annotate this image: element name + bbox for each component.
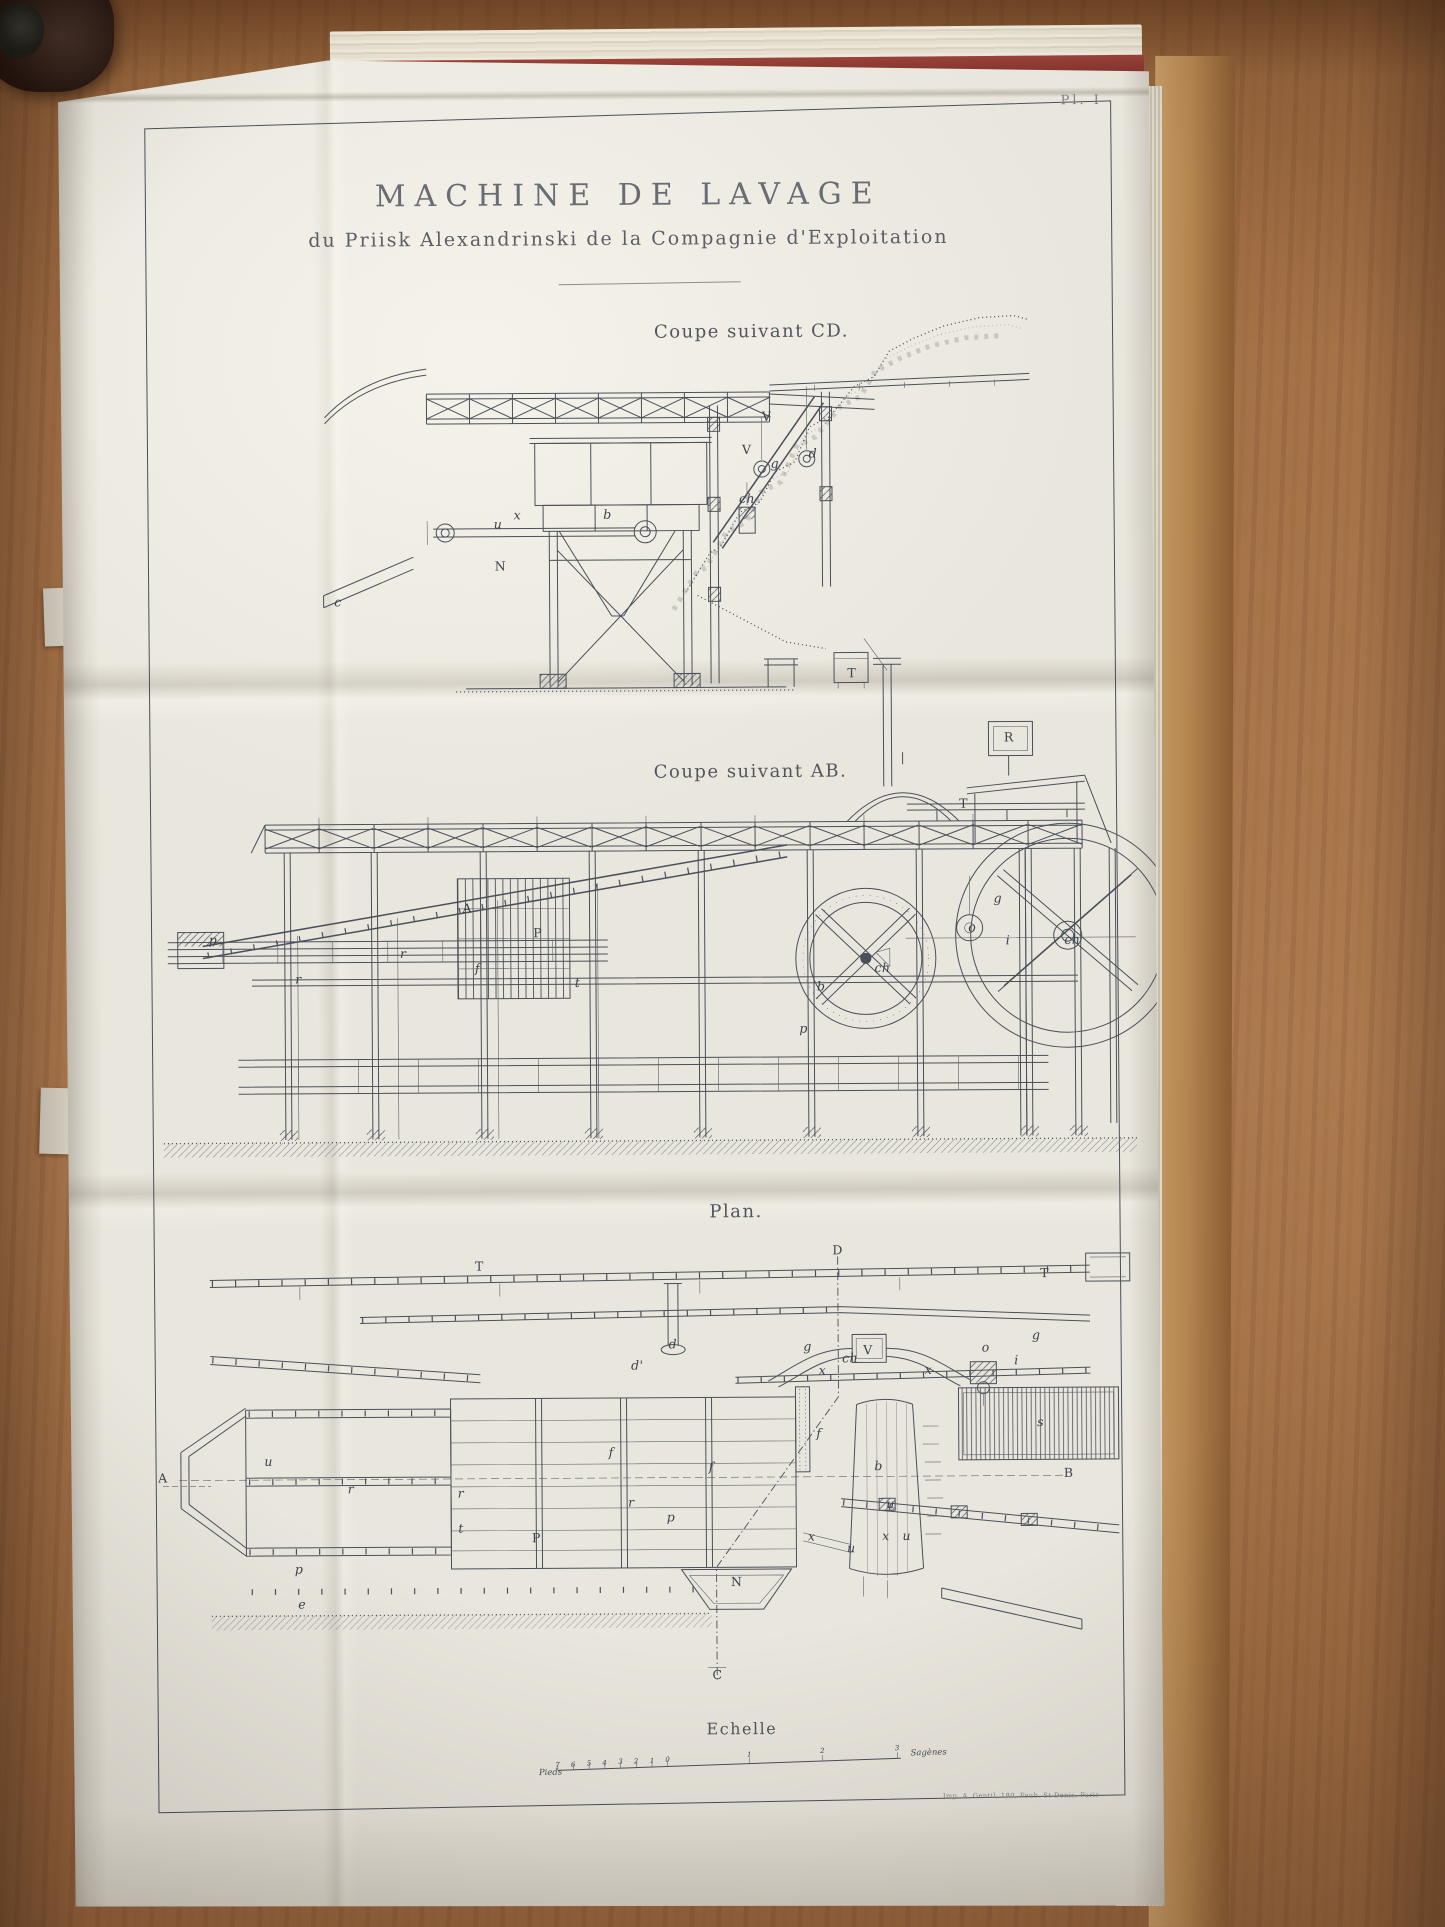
printer-imprint: Imp. A. Gentil, 180, Faub. St Denis, Par…: [943, 1791, 1099, 1800]
part-label-t: t: [458, 1523, 464, 1536]
part-label-o: o: [968, 922, 976, 935]
part-label-r: r: [295, 974, 302, 987]
folded-plate-sheet: Pl. I MACHINE DE LAVAGE du Priisk Alexan…: [52, 53, 1165, 1924]
part-label-s: s: [1037, 1416, 1044, 1429]
part-label-x: x: [925, 1364, 933, 1377]
part-label-N: N: [495, 560, 507, 573]
part-label-g: g: [803, 1340, 812, 1353]
labels-coupe-ab: RTgoichchbpAPrrftp: [146, 635, 1139, 1191]
part-label-g: g: [994, 892, 1003, 905]
part-label-C: C: [712, 1669, 722, 1682]
part-label-p: p: [667, 1511, 676, 1524]
part-label-T: T: [1040, 1267, 1049, 1280]
part-label-x: x: [882, 1530, 890, 1543]
part-label-T: T: [959, 797, 968, 810]
part-label-V: V: [762, 411, 772, 424]
part-label-u: u: [494, 518, 503, 531]
part-label-T: T: [475, 1261, 484, 1274]
part-label-1: 1: [747, 1752, 752, 1759]
plate-number: Pl. I: [1061, 93, 1102, 108]
part-label-V: V: [742, 444, 752, 457]
photograph-of-plate: { "plate": { "number": "Pl. I", "title":…: [0, 0, 1445, 1927]
part-label-p: p: [799, 1023, 808, 1036]
plate-title: MACHINE DE LAVAGE: [145, 175, 1111, 216]
caption-plan: Plan.: [709, 1201, 763, 1222]
part-label-d: d: [809, 447, 818, 460]
part-label-f: f: [475, 963, 480, 976]
part-label-2: 2: [820, 1748, 825, 1755]
part-label-3: 3: [895, 1745, 900, 1752]
part-label-P: P: [533, 927, 542, 940]
part-label-B: B: [1064, 1467, 1074, 1480]
part-label-P: P: [532, 1532, 541, 1545]
part-label-A: A: [158, 1472, 168, 1485]
part-label-R: R: [1004, 731, 1014, 744]
part-label-f: f: [609, 1447, 614, 1460]
part-label-f: f: [709, 1461, 714, 1474]
part-label-p: p: [209, 934, 218, 947]
plate-fold-tab: [39, 1088, 73, 1155]
part-label-A: A: [462, 903, 472, 916]
part-label-N: N: [731, 1576, 743, 1589]
part-label-c: c: [334, 596, 342, 609]
part-label-i: i: [1006, 935, 1011, 948]
part-label-b: b: [817, 980, 826, 993]
part-label-D: D: [832, 1244, 843, 1257]
part-label-x: x: [808, 1530, 816, 1543]
part-label-i: i: [1014, 1354, 1019, 1367]
part-label-g: g: [771, 458, 780, 471]
part-label-r: r: [628, 1497, 635, 1510]
part-label-V: V: [863, 1344, 873, 1357]
part-label-b: b: [603, 509, 612, 522]
part-label-u: u: [902, 1530, 911, 1543]
part-label-r: r: [348, 1483, 355, 1496]
labels-plan: TDTdd'gchVxxoigsbfffrrrtPppuuuxxNCABeu: [150, 1235, 1143, 1711]
part-label-t: t: [575, 977, 581, 990]
part-label-e: e: [298, 1599, 306, 1612]
part-label-x: x: [514, 509, 522, 522]
part-label-ch: ch: [1064, 934, 1080, 947]
part-label-x: x: [819, 1364, 827, 1377]
part-label-ch: ch: [739, 493, 755, 506]
part-label-p: p: [295, 1564, 304, 1577]
part-label-u: u: [886, 1498, 895, 1511]
part-label-o: o: [982, 1341, 990, 1354]
part-label-u: u: [847, 1542, 856, 1555]
caption-echelle: Echelle: [706, 1719, 777, 1738]
part-label-r: r: [458, 1488, 465, 1501]
part-label-d-prime: d': [631, 1359, 644, 1372]
part-label-b: b: [874, 1460, 883, 1473]
part-label-ch: ch: [874, 962, 890, 975]
part-label-g: g: [1032, 1329, 1041, 1342]
part-label-r: r: [400, 948, 407, 961]
part-label-u: u: [264, 1456, 273, 1469]
part-label-ch: ch: [842, 1352, 858, 1365]
part-label-f: f: [816, 1427, 821, 1440]
part-label-d: d: [669, 1338, 678, 1351]
